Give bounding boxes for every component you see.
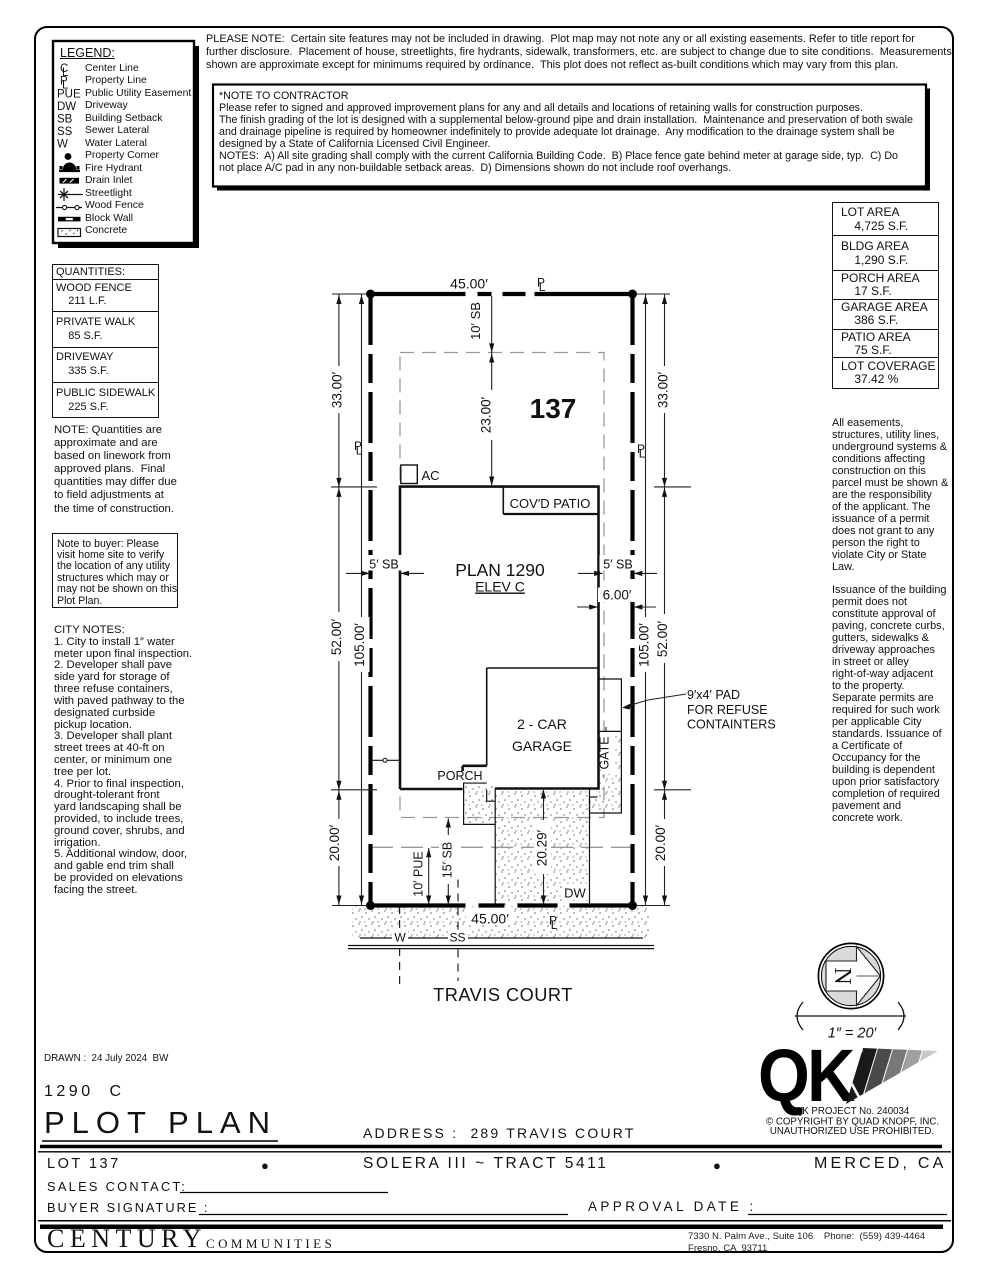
svg-text:6.00′: 6.00′ [603,588,632,603]
svg-text:AC: AC [422,468,440,483]
svg-text:45.00′: 45.00′ [471,911,509,927]
svg-text:L: L [551,918,558,932]
svg-text:PORCH: PORCH [437,769,482,783]
svg-text:SS: SS [449,931,465,945]
svg-text:DW: DW [57,101,76,113]
svg-text:L: L [539,280,546,294]
svg-text:UNAUTHORIZED USE PROHIBITED.: UNAUTHORIZED USE PROHIBITED. [770,1126,934,1137]
svg-text:105.00′: 105.00′ [352,623,367,667]
svg-text:PLAN 1290: PLAN 1290 [455,560,545,580]
svg-text:W: W [57,139,68,151]
svg-text:W: W [394,931,406,945]
svg-text:GARAGE: GARAGE [512,738,572,754]
svg-text:FOR REFUSE: FOR REFUSE [687,703,768,717]
svg-text:52.00′: 52.00′ [655,620,670,657]
svg-text:QK: QK [758,1034,855,1117]
svg-text:5′ SB: 5′ SB [603,558,632,572]
svg-text:5′ SB: 5′ SB [369,558,398,572]
svg-text:PUE: PUE [57,89,81,101]
svg-text:33.00′: 33.00′ [330,371,345,408]
svg-text:15′ SB: 15′ SB [441,842,455,878]
svg-text:137: 137 [530,393,577,424]
svg-text:10′ PUE: 10′ PUE [412,851,426,896]
svg-text:105.00′: 105.00′ [637,623,652,667]
svg-text:N: N [829,967,855,984]
svg-text:20.00′: 20.00′ [327,824,342,861]
svg-text:GATE: GATE [598,736,612,769]
svg-text:DW: DW [564,886,586,901]
svg-text:23.00′: 23.00′ [479,396,494,433]
svg-text:L: L [356,444,363,458]
svg-text:20.00′: 20.00′ [653,824,668,861]
svg-text:CONTAINTERS: CONTAINTERS [687,718,776,732]
svg-text:TRAVIS COURT: TRAVIS COURT [433,985,573,1005]
svg-text:33.00′: 33.00′ [656,371,671,408]
svg-text:20.29′: 20.29′ [535,829,550,866]
svg-text:45.00′: 45.00′ [450,276,488,292]
svg-text:2 - CAR: 2 - CAR [517,716,567,732]
svg-text:9′x4′ PAD: 9′x4′ PAD [687,688,740,702]
svg-text:52.00′: 52.00′ [329,618,344,655]
svg-text:COV′D PATIO: COV′D PATIO [510,496,591,511]
svg-text:SS: SS [57,126,73,138]
svg-text:ELEV C: ELEV C [475,579,525,595]
svg-text:SB: SB [57,114,73,126]
svg-text:10′ SB: 10′ SB [468,302,483,340]
svg-text:QK PROJECT No. 240034: QK PROJECT No. 240034 [795,1106,910,1117]
svg-text:L: L [639,447,646,461]
